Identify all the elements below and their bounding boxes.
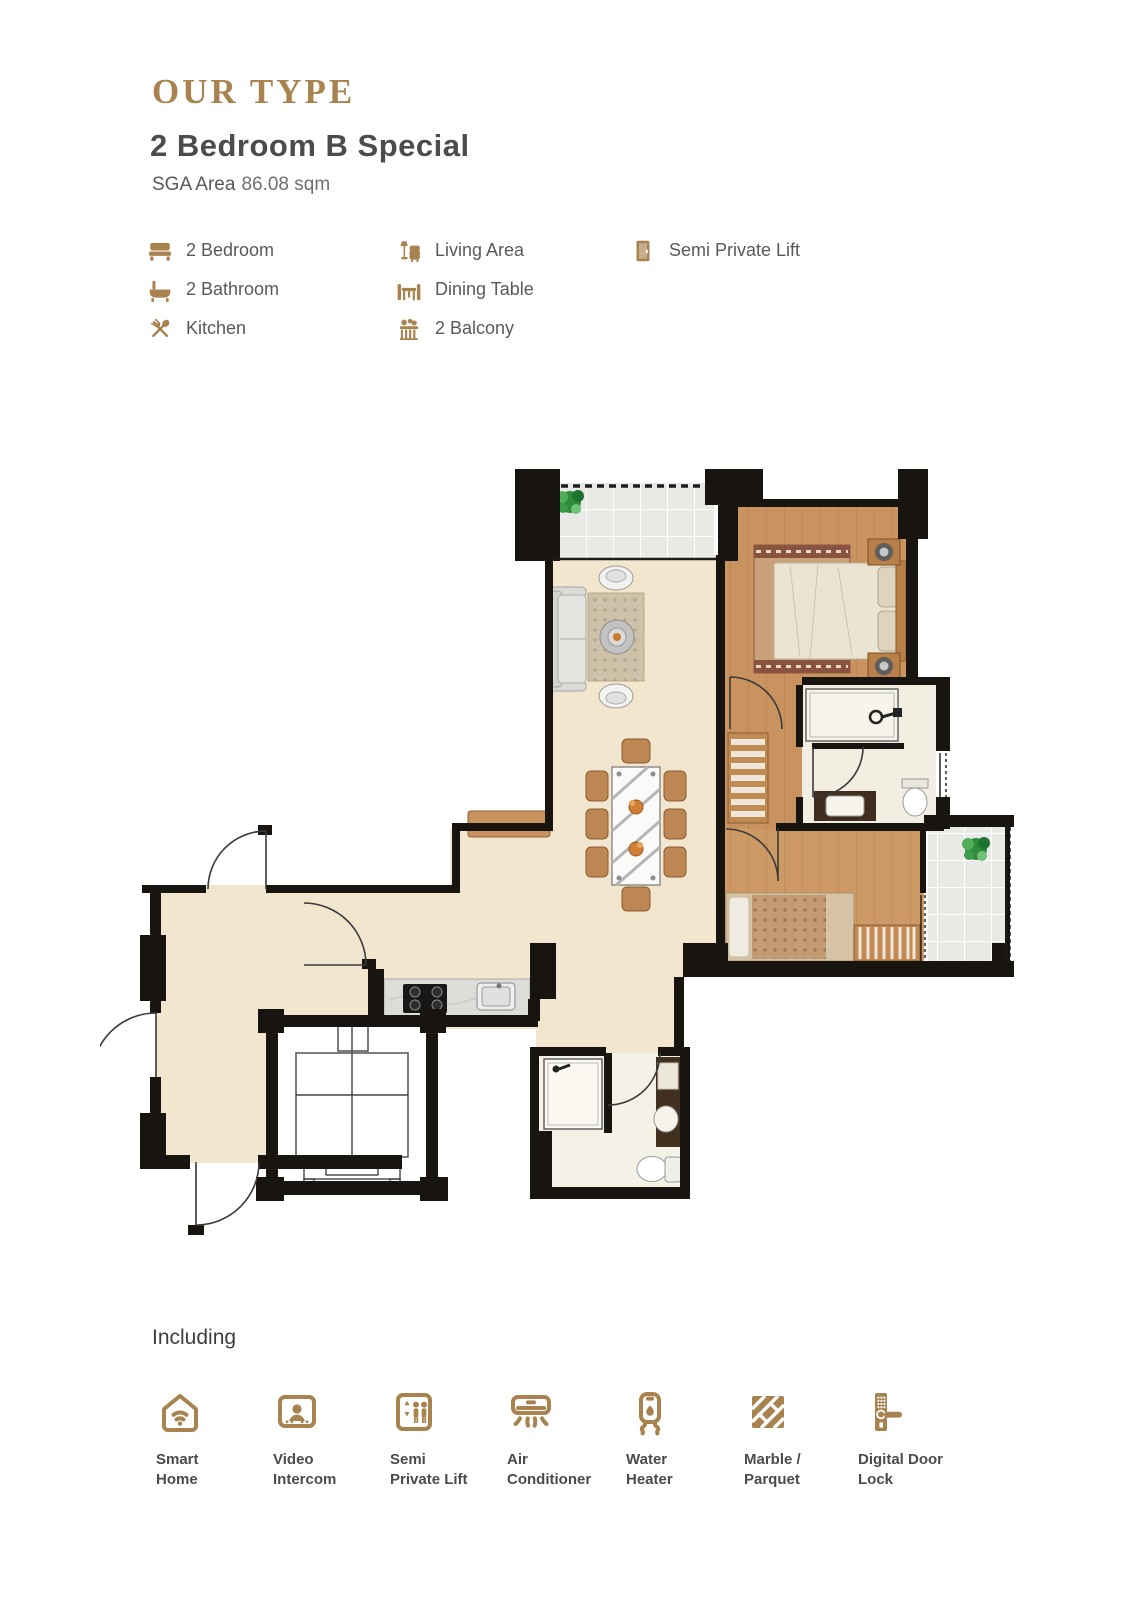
including-label: Video [273, 1450, 381, 1470]
semi-private-lift-icon [390, 1388, 498, 1436]
including-label: Marble / [744, 1450, 852, 1470]
feature-label: Dining Table [435, 279, 534, 300]
video-intercom-icon [273, 1388, 381, 1436]
including-heading: Including [152, 1326, 236, 1350]
including-label: Conditioner [507, 1470, 615, 1490]
kitchen-counter [384, 979, 530, 1017]
kitchen-icon [147, 316, 173, 342]
balcony-icon [396, 316, 422, 342]
including-smart-home: SmartHome [156, 1388, 264, 1489]
page-eyebrow: OUR TYPE [152, 72, 355, 112]
feature-column-2: Living Area Dining Table 2 Balcony [396, 231, 534, 348]
feature-label: Semi Private Lift [669, 240, 800, 261]
including-water-heater: WaterHeater [626, 1388, 734, 1489]
including-label: Private Lift [390, 1470, 498, 1490]
feature-balcony: 2 Balcony [396, 309, 534, 348]
stove [403, 984, 447, 1013]
feature-living-area: Living Area [396, 231, 534, 270]
master-bed [754, 539, 906, 679]
including-digital-door-lock: Digital DoorLock [858, 1388, 966, 1489]
including-label: Heater [626, 1470, 734, 1490]
including-list: SmartHome VideoIntercom [0, 1388, 1131, 1518]
including-label: Lock [858, 1470, 966, 1490]
including-label: Parquet [744, 1470, 852, 1490]
area-line: SGA Area86.08 sqm [152, 174, 330, 196]
area-value: 86.08 sqm [241, 174, 330, 195]
living-area-icon [396, 238, 422, 264]
including-label: Home [156, 1470, 264, 1490]
including-label: Digital Door [858, 1450, 966, 1470]
air-conditioner-icon [507, 1388, 615, 1436]
feature-bathroom: 2 Bathroom [147, 270, 279, 309]
including-label: Water [626, 1450, 734, 1470]
including-label: Smart [156, 1450, 264, 1470]
dining-table-icon [396, 277, 422, 303]
including-label: Air [507, 1450, 615, 1470]
feature-label: Living Area [435, 240, 524, 261]
brochure-page: OUR TYPE 2 Bedroom B Special SGA Area86.… [0, 0, 1131, 1600]
feature-bedroom: 2 Bedroom [147, 231, 279, 270]
feature-label: 2 Bathroom [186, 279, 279, 300]
feature-semi-private-lift: Semi Private Lift [630, 231, 800, 270]
feature-column-1: 2 Bedroom 2 Bathroom Kitchen [147, 231, 279, 348]
including-marble-parquet: Marble /Parquet [744, 1388, 852, 1489]
page-title: 2 Bedroom B Special [150, 128, 470, 164]
bed-icon [147, 238, 173, 264]
kitchen-sink [477, 983, 515, 1010]
floor-plan [100, 455, 1031, 1250]
including-video-intercom: VideoIntercom [273, 1388, 381, 1489]
feature-kitchen: Kitchen [147, 309, 279, 348]
wardrobe [728, 733, 768, 823]
lift-door-icon [630, 238, 656, 264]
marble-parquet-icon [744, 1388, 852, 1436]
digital-door-lock-icon [858, 1388, 966, 1436]
water-heater-icon [626, 1388, 734, 1436]
smart-home-icon [156, 1388, 264, 1436]
including-label: Intercom [273, 1470, 381, 1490]
feature-label: 2 Bedroom [186, 240, 274, 261]
area-label: SGA Area [152, 174, 235, 195]
bathtub-icon [147, 277, 173, 303]
including-air-conditioner: AirConditioner [507, 1388, 615, 1489]
feature-list: 2 Bedroom 2 Bathroom Kitchen Living A [147, 231, 947, 356]
including-label: Semi [390, 1450, 498, 1470]
feature-label: 2 Balcony [435, 318, 514, 339]
feature-dining-table: Dining Table [396, 270, 534, 309]
including-semi-private-lift: SemiPrivate Lift [390, 1388, 498, 1489]
feature-label: Kitchen [186, 318, 246, 339]
feature-column-3: Semi Private Lift [630, 231, 800, 270]
